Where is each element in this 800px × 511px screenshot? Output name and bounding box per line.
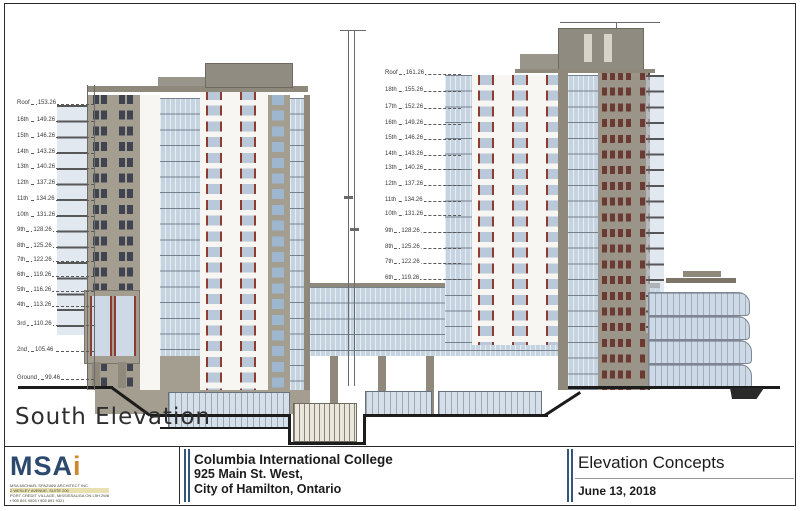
level-row-16th: 16th149.26 [384, 119, 461, 126]
level-row-8th: 8th125.26 [16, 242, 94, 249]
sheet-cell-bar2 [571, 449, 573, 502]
pavilion-canopy-slab [666, 278, 736, 283]
sheet-date: June 13, 2018 [578, 484, 656, 498]
east-penthouse-step [520, 54, 558, 70]
west-datum-line [94, 85, 95, 390]
level-elevation: 149.26 [36, 117, 56, 123]
drawing-title: South Elevation [15, 404, 211, 430]
level-label: 10th [16, 212, 30, 218]
height-dimension-line [348, 30, 349, 386]
firm-address-line: t 905 891 9505 f 905 891 9321 [10, 498, 109, 503]
dimension-tick-mid [350, 228, 359, 231]
level-row-4th: 4th113.26 [16, 301, 94, 308]
level-elevation: 137.26 [36, 180, 56, 186]
level-elevation: 125.26 [400, 244, 420, 250]
level-row-17th: 17th152.26 [384, 103, 461, 110]
pavilion-band [648, 316, 750, 340]
west-penthouse-step [158, 77, 205, 86]
level-row-10th: 10th131.26 [16, 211, 94, 218]
level-elevation: 161.26 [405, 70, 425, 76]
level-label: 9th [16, 227, 26, 233]
level-elevation: 146.26 [36, 133, 56, 139]
title-block: MSAi MSA MICHAEL SPAZIANI ARCHITECT INC.… [4, 447, 794, 504]
level-row-14th: 14th143.26 [16, 148, 94, 155]
level-label: 13th [384, 165, 398, 171]
level-elevation: 143.26 [36, 149, 56, 155]
level-elevation: 153.26 [37, 100, 57, 106]
level-row-7th: 7th122.26 [384, 258, 461, 265]
dimension-tick-mid [344, 196, 353, 199]
level-elevation: 155.26 [404, 87, 424, 93]
level-label: Roof [384, 70, 399, 76]
level-row-3rd: 3rd110.26 [16, 320, 94, 327]
level-row-12th: 12th137.26 [384, 180, 461, 187]
level-label: 16th [16, 117, 30, 123]
east-tower-white-facade [472, 75, 558, 345]
firm-address-microtext: MSA MICHAEL SPAZIANI ARCHITECT INC. 2 WE… [10, 483, 109, 503]
level-elevation: 131.26 [36, 212, 56, 218]
level-row-15th: 15th146.26 [16, 132, 94, 139]
east-penthouse-slot [584, 34, 592, 62]
level-row-roof: Roof161.26 [384, 69, 461, 76]
west-tower-white-facade [200, 90, 268, 390]
level-label: 8th [384, 244, 394, 250]
level-row-14th: 14th143.26 [384, 150, 461, 157]
level-row-8th: 8th125.26 [384, 243, 461, 250]
pavilion-canopy-upper [683, 271, 721, 277]
level-elevation: 99.46 [44, 375, 61, 381]
level-row-13th: 13th140.26 [16, 163, 94, 170]
level-row-11th: 11th134.26 [16, 195, 94, 202]
level-elevation: 149.26 [404, 120, 424, 126]
level-label: 14th [384, 151, 398, 157]
east-dimension-tick [560, 22, 660, 23]
level-label: 7th [384, 259, 394, 265]
level-label: 18th [384, 87, 398, 93]
level-row-7th: 7th122.26 [16, 256, 94, 263]
level-label: Roof [16, 100, 31, 106]
level-elevation: 134.26 [35, 196, 55, 202]
level-elevation: 122.26 [400, 259, 420, 265]
level-label: 15th [16, 133, 30, 139]
level-row-6th: 6th119.26 [384, 274, 461, 281]
east-tower-right-face [598, 72, 650, 390]
project-name: Columbia International College [194, 452, 393, 467]
firm-logo-i: i [73, 451, 82, 481]
pavilion-band [648, 292, 750, 316]
sheet-title-rule [575, 478, 794, 479]
project-cell-bar2 [188, 449, 190, 502]
drawing-area: Roof153.2616th149.2615th146.2614th143.26… [0, 0, 800, 446]
level-elevation: 113.26 [32, 302, 52, 308]
east-tower-pier [558, 72, 568, 390]
level-elevation: 140.26 [36, 164, 56, 170]
level-elevation: 125.26 [32, 243, 52, 249]
west-tower-curtainwall [160, 98, 200, 356]
level-elevation: 137.26 [404, 181, 424, 187]
west-penthouse [205, 63, 293, 88]
level-elevation: 128.26 [400, 228, 420, 234]
level-label: 12th [16, 180, 30, 186]
level-label: Ground [16, 375, 38, 381]
level-row-5th: 5th116.26 [16, 286, 94, 293]
level-row-9th: 9th128.26 [16, 226, 94, 233]
level-row-13th: 13th140.26 [384, 164, 461, 171]
storefront-right [365, 391, 432, 416]
level-elevation: 116.26 [32, 287, 52, 293]
ground-berm [730, 388, 764, 399]
firm-cell: MSAi MSA MICHAEL SPAZIANI ARCHITECT INC.… [4, 447, 180, 504]
dimension-tick-top [340, 30, 366, 31]
level-label: 16th [384, 120, 398, 126]
level-row-18th: 18th155.26 [384, 86, 461, 93]
east-penthouse-slot [604, 34, 612, 62]
level-elevation: 143.26 [404, 151, 424, 157]
level-row-10th: 10th131.26 [384, 210, 461, 217]
level-label: 15th [384, 135, 398, 141]
level-elevation: 152.26 [404, 104, 424, 110]
west-tower-edge-shadow [304, 95, 310, 390]
east-tower-mid-glass [568, 75, 598, 390]
ground-line-low2 [358, 414, 548, 417]
pavilion-band [648, 340, 752, 364]
level-label: 9th [384, 228, 394, 234]
sheet-cell-bar [567, 449, 569, 502]
project-cell-bar [184, 449, 186, 502]
level-label: 11th [16, 196, 29, 202]
level-label: 12th [384, 181, 398, 187]
east-roof-slab [515, 69, 655, 73]
firm-logo-msa: MSA [10, 451, 73, 481]
level-row-2nd: 2nd105.46 [16, 346, 94, 353]
level-label: 10th [384, 211, 398, 217]
level-row-9th: 9th128.26 [384, 227, 461, 234]
level-row-6th: 6th119.26 [16, 271, 94, 278]
level-label: 3rd [16, 321, 27, 327]
level-row-ground: Ground99.46 [16, 374, 94, 381]
level-elevation: 119.26 [400, 275, 420, 281]
west-tower-right-pier [268, 95, 290, 390]
level-elevation: 110.26 [33, 321, 53, 327]
level-label: 4th [16, 302, 26, 308]
ground-slope-up [543, 391, 581, 417]
west-datum-line [87, 85, 88, 390]
sheet-title: Elevation Concepts [578, 453, 724, 473]
level-label: 5th [16, 287, 26, 293]
level-label: 7th [16, 257, 26, 263]
storefront-right2 [438, 391, 542, 416]
level-label: 2nd [16, 347, 28, 353]
level-row-11th: 11th134.26 [384, 196, 461, 203]
west-annex-piloti [118, 362, 126, 388]
west-tower-right-glass [290, 98, 304, 390]
west-annex-window [114, 296, 136, 356]
level-row-roof: Roof153.26 [16, 99, 94, 106]
project-address: 925 Main St. West, [194, 467, 393, 482]
level-label: 14th [16, 149, 30, 155]
level-row-16th: 16th149.26 [16, 116, 94, 123]
level-row-12th: 12th137.26 [16, 179, 94, 186]
east-dimension-line [616, 22, 617, 28]
project-info: Columbia International College 925 Main … [194, 452, 393, 497]
east-penthouse [558, 28, 644, 72]
level-elevation: 131.26 [404, 211, 424, 217]
ground-line [18, 386, 113, 389]
level-elevation: 119.26 [32, 272, 52, 278]
height-dimension-line [354, 30, 355, 386]
level-elevation: 134.26 [403, 197, 423, 203]
level-label: 13th [16, 164, 30, 170]
level-label: 17th [384, 104, 398, 110]
level-elevation: 122.26 [32, 257, 52, 263]
level-elevation: 128.26 [32, 227, 52, 233]
level-label: 11th [384, 197, 397, 203]
level-row-15th: 15th146.26 [384, 134, 461, 141]
project-city: City of Hamilton, Ontario [194, 482, 393, 497]
stair-treads [293, 403, 357, 442]
level-label: 6th [384, 275, 394, 281]
elevation-drawing-sheet: Roof153.2616th149.2615th146.2614th143.26… [0, 0, 800, 511]
level-label: 6th [16, 272, 26, 278]
level-elevation: 140.26 [404, 165, 424, 171]
level-elevation: 105.46 [34, 347, 54, 353]
west-tower-white-strip [140, 95, 160, 390]
level-elevation: 146.26 [404, 135, 424, 141]
level-label: 8th [16, 243, 26, 249]
firm-logo: MSAi [10, 453, 82, 479]
